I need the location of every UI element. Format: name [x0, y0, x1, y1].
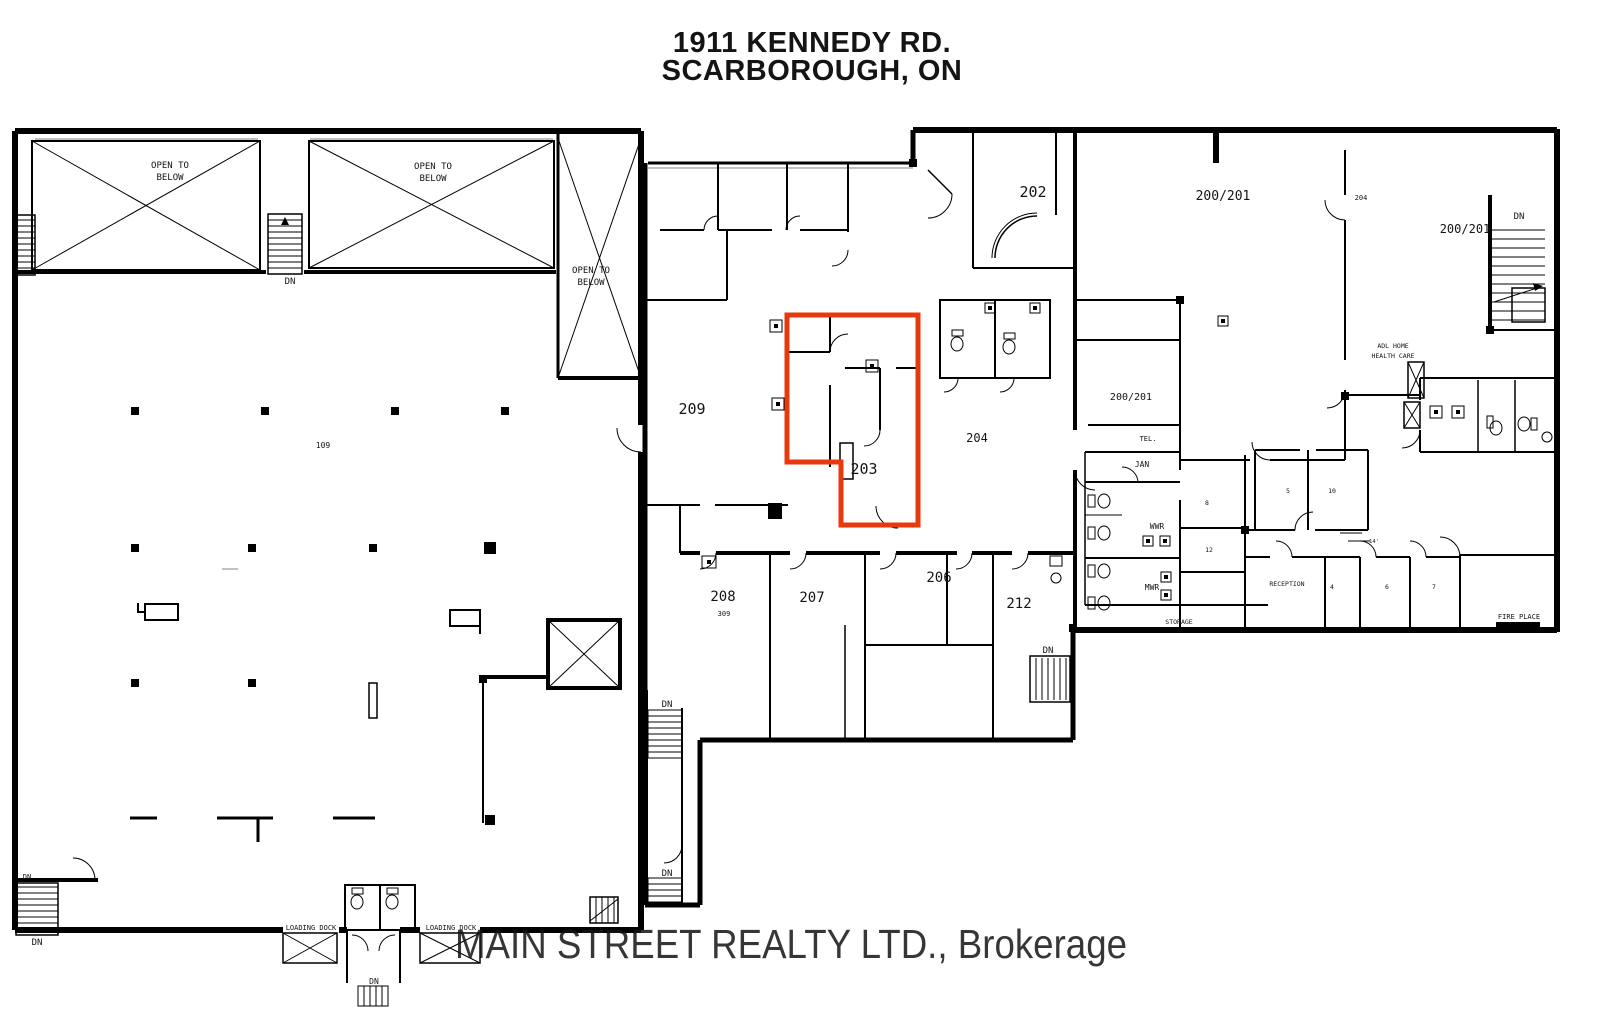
unit-label-206: 206	[926, 570, 951, 586]
room-label-tel: TEL.	[1140, 435, 1157, 443]
room-label-jan: JAN	[1135, 460, 1150, 469]
unit-203-highlight-outline	[787, 315, 918, 525]
center-stairs	[648, 656, 1070, 906]
room-label-small-1: 8	[1205, 499, 1209, 507]
open-below-2b: BELOW	[419, 174, 447, 184]
unit-label-212: 212	[1006, 596, 1031, 612]
room-label-adl-1: ADL HOME	[1377, 342, 1408, 350]
unit-label-200-201-b: 200/201	[1440, 222, 1491, 236]
room-label-storage: STORAGE	[1165, 618, 1192, 626]
dn-label-8: DN	[23, 873, 31, 881]
dn-label-4: DN	[1043, 646, 1054, 656]
unit-label-200-201-c: 200/201	[1110, 392, 1152, 403]
room-label-small-7: 7	[1432, 583, 1436, 591]
open-below-3b: BELOW	[577, 278, 605, 288]
room-label-small-4: 10	[1328, 487, 1336, 495]
room-label-wwr: WWR	[1150, 522, 1165, 531]
dn-label-5: DN	[1514, 212, 1525, 222]
floor-plan: 1911 KENNEDY RD. SCARBOROUGH, ON OPEN TO…	[0, 0, 1600, 1011]
unit-label-208-area: 309	[718, 610, 731, 618]
room-label-small-3: 5	[1286, 487, 1290, 495]
dn-label-6: DN	[32, 938, 43, 948]
open-to-below-areas	[32, 139, 640, 375]
dn-label-7: DN	[369, 977, 379, 986]
unit-label-203: 203	[850, 460, 877, 478]
unit-label-109: 109	[316, 441, 331, 450]
floor-plan-canvas: 1911 KENNEDY RD. SCARBOROUGH, ON OPEN TO…	[0, 0, 1600, 1011]
west-wing-walls	[15, 131, 644, 930]
open-below-2a: OPEN TO	[414, 162, 452, 172]
door-arcs	[352, 194, 1460, 935]
room-202-interior	[928, 131, 1075, 378]
unit-203-interior	[788, 317, 919, 479]
room-label-adl-2: HEALTH CARE	[1371, 352, 1414, 360]
dn-label-1: DN	[285, 277, 296, 287]
electrical-boxes	[702, 303, 1464, 600]
open-below-1a: OPEN TO	[151, 161, 189, 171]
dimension-label: 14'	[1369, 539, 1379, 545]
unit-label-202: 202	[1019, 183, 1046, 201]
room-label-mwr: MWR	[1145, 583, 1160, 592]
center-wing-walls	[645, 129, 1557, 905]
room-label-small-5: 4	[1330, 583, 1334, 591]
room-label-reception: RECEPTION	[1269, 580, 1304, 588]
unit-label-204: 204	[966, 431, 988, 445]
open-below-3a: OPEN TO	[572, 266, 610, 276]
warehouse-columns	[130, 407, 620, 842]
open-below-1b: BELOW	[156, 173, 184, 183]
unit-label-208: 208	[710, 589, 735, 605]
page-title-line2: SCARBOROUGH, ON	[662, 55, 963, 87]
unit-label-209: 209	[678, 400, 705, 418]
room-label-fireplace: FIRE PLACE	[1498, 613, 1540, 621]
east-wing-fixtures	[1085, 416, 1552, 610]
dn-label-3: DN	[662, 869, 673, 879]
watermark: MAIN STREET REALTY LTD., Brokerage	[455, 921, 1127, 967]
room-label-small-6: 6	[1385, 583, 1389, 591]
room-label-small-2: 12	[1205, 546, 1213, 554]
unit-label-207: 207	[799, 590, 824, 606]
unit-label-204-small: 204	[1355, 194, 1368, 202]
dn-label-2: DN	[662, 700, 673, 710]
loading-dock-label-1: LOADING DOCK	[286, 924, 337, 932]
unit-label-200-201-a: 200/201	[1196, 189, 1251, 204]
